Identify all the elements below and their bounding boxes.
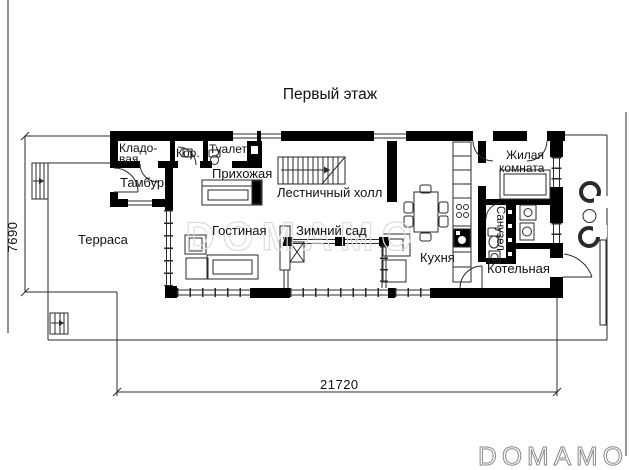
floor-plan-canvas: DOMAMO Первый этаж Кладо- вая Кор. Туале… xyxy=(0,0,630,470)
room-label-storage-line2: вая xyxy=(119,152,138,166)
room-label-kitchen: Кухня xyxy=(420,250,455,265)
coffee-table xyxy=(186,258,208,279)
brand-logo: DOMAMO xyxy=(478,441,628,470)
room-label-room-line1: Жилая xyxy=(506,148,544,162)
room-label-stair-hall: Лестничный холл xyxy=(277,185,382,200)
kitchen-counter xyxy=(453,142,471,282)
room-label-toilet: Туалет xyxy=(209,142,247,156)
wardrobe xyxy=(202,180,262,205)
floor-plan-title: Первый этаж xyxy=(283,86,378,103)
floor-plan-drawing: DOMAMO Первый этаж Кладо- вая Кор. Туале… xyxy=(0,0,630,470)
room-label-hallway: Прихожая xyxy=(212,166,272,181)
terrace-steps-icon xyxy=(50,313,68,334)
stove-icon xyxy=(457,205,469,218)
dimension-lines xyxy=(21,132,561,396)
room-label-boiler-room: Котельная xyxy=(487,261,550,276)
room-label-tambour: Тамбур xyxy=(120,175,164,190)
stairs-symbol xyxy=(278,157,345,184)
sink-icon xyxy=(454,229,470,247)
room-label-terrace: Терраса xyxy=(78,232,129,247)
room-label-room-line2: комната xyxy=(499,161,545,175)
room-label-corridor: Кор. xyxy=(176,146,200,160)
dimension-height-label: 7690 xyxy=(5,222,20,253)
patio-table xyxy=(583,210,596,223)
room-label-living-room: Гостиная xyxy=(212,223,267,238)
entry-steps-icon xyxy=(32,163,48,199)
patio-chairs xyxy=(580,183,608,246)
boiler-equipment-icon xyxy=(520,205,536,240)
room-label-bathroom: Санузел xyxy=(494,206,506,251)
room-label-winter-garden: Зимний сад xyxy=(296,223,367,238)
dimension-width-label: 21720 xyxy=(320,377,359,392)
